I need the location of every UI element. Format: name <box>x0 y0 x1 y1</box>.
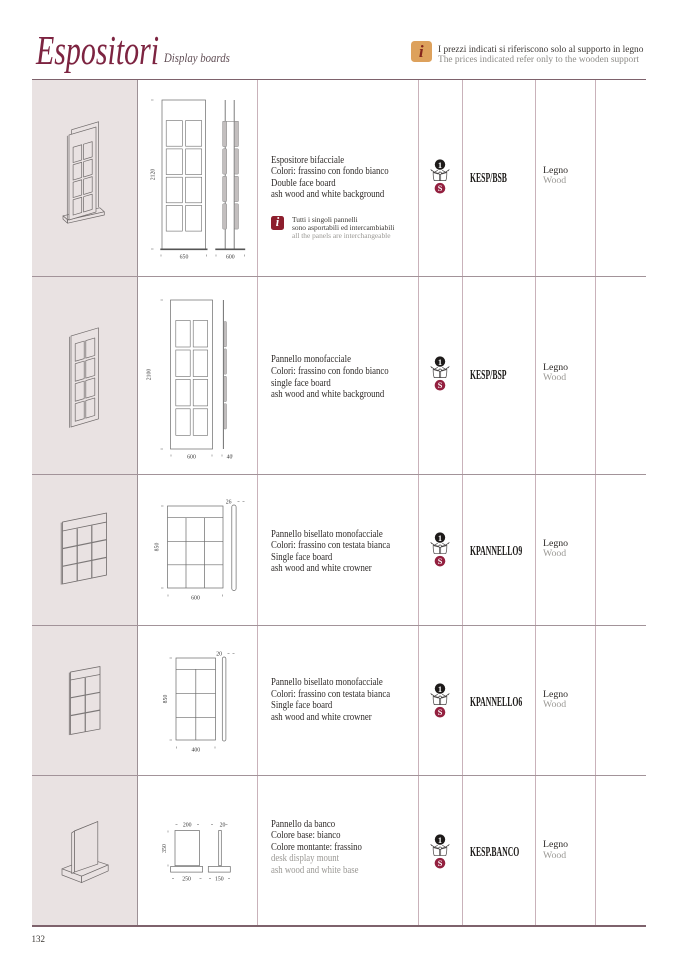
svg-text:S: S <box>438 184 443 193</box>
svg-text:S: S <box>438 557 443 566</box>
svg-text:1: 1 <box>438 835 442 845</box>
svg-text:650: 650 <box>180 255 189 261</box>
svg-text:2100: 2100 <box>147 369 153 381</box>
svg-text:850: 850 <box>155 543 161 552</box>
svg-text:1: 1 <box>438 684 442 694</box>
svg-text:200: 200 <box>183 823 192 829</box>
svg-text:S: S <box>438 859 443 868</box>
svg-text:600: 600 <box>226 255 235 261</box>
svg-text:150: 150 <box>215 877 224 883</box>
svg-text:S: S <box>438 381 443 390</box>
svg-text:20: 20 <box>220 823 226 829</box>
svg-text:600: 600 <box>187 455 196 461</box>
svg-text:26: 26 <box>226 500 232 506</box>
svg-text:2120: 2120 <box>151 169 157 181</box>
svg-text:250: 250 <box>182 877 191 883</box>
svg-text:850: 850 <box>163 695 169 704</box>
svg-text:600: 600 <box>191 596 200 602</box>
svg-text:1: 1 <box>438 160 442 170</box>
svg-text:S: S <box>438 708 443 717</box>
svg-text:1: 1 <box>438 533 442 543</box>
svg-text:40: 40 <box>227 455 233 461</box>
svg-text:20: 20 <box>216 652 222 658</box>
svg-text:350: 350 <box>162 844 168 853</box>
svg-text:1: 1 <box>438 357 442 367</box>
svg-text:400: 400 <box>191 748 200 754</box>
